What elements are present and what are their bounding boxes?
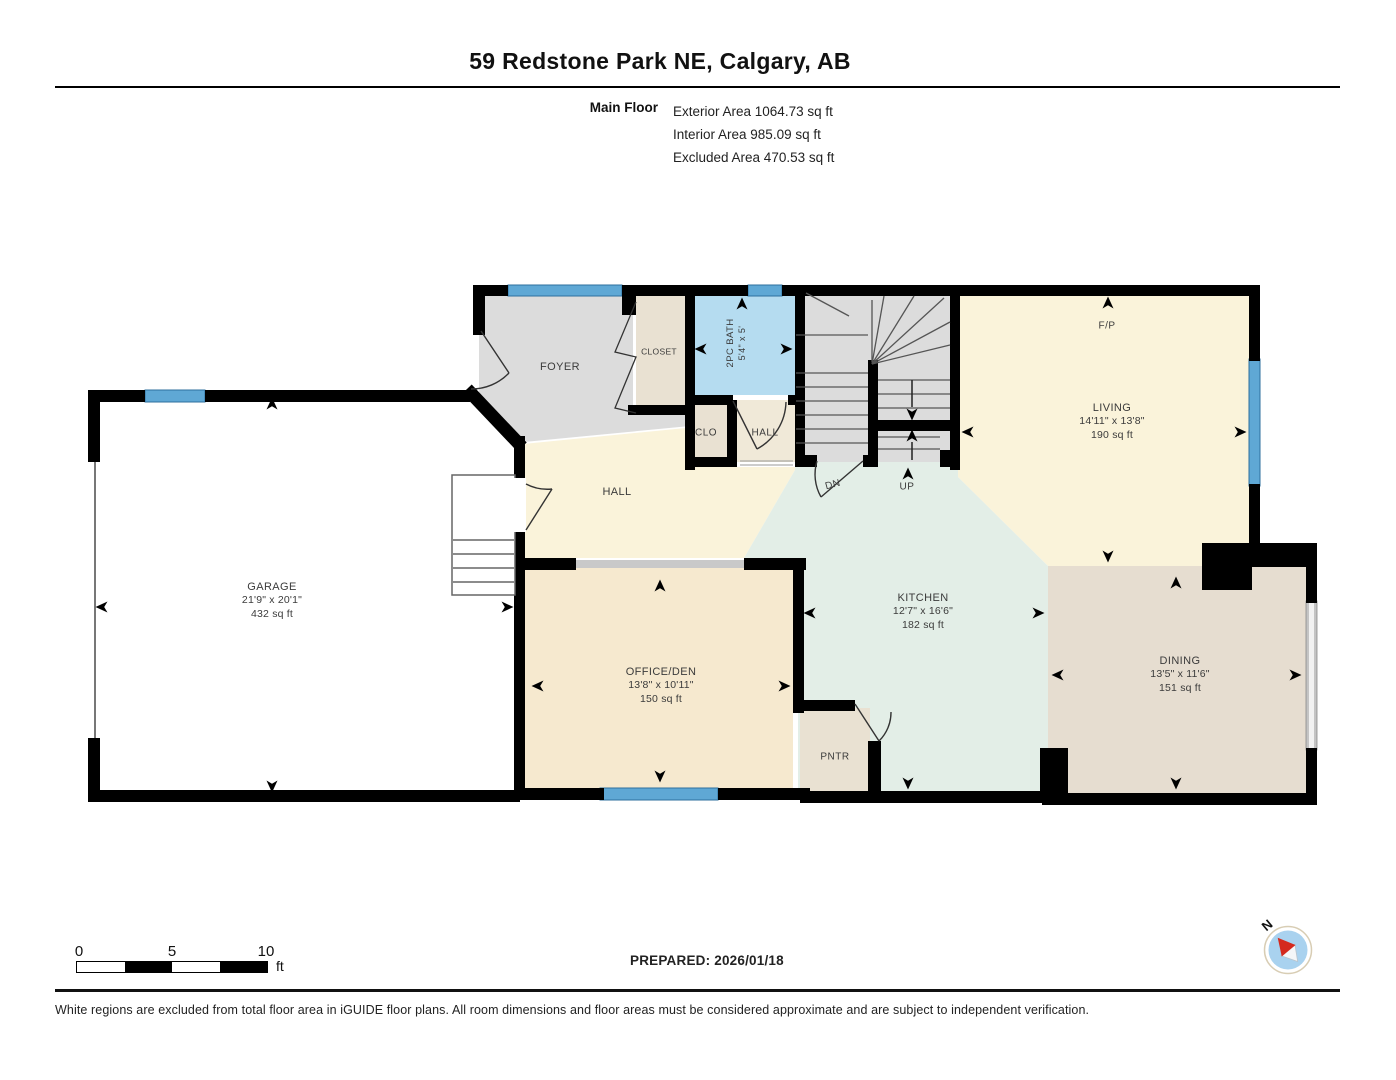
room-fills-layer (93, 296, 1310, 798)
room-label-kitchen: KITCHEN 12'7" x 16'6" 182 sq ft (893, 591, 953, 633)
office-window (600, 788, 718, 800)
prepared-date: PREPARED: 2026/01/18 (630, 953, 784, 968)
scale-tick-5: 5 (168, 943, 176, 960)
room-label-foyer: FOYER (540, 360, 580, 374)
room-label-garage: GARAGE 21'9" x 20'1" 432 sq ft (242, 580, 302, 622)
room-label-clo: CLO (695, 427, 717, 440)
garage-window (145, 390, 205, 402)
room-label-hall-main: HALL (602, 485, 631, 499)
floor-plan-canvas: N (0, 0, 1396, 1080)
dining-patio-door (1306, 601, 1317, 750)
room-label-office-den: OFFICE/DEN 13'8" x 10'11" 150 sq ft (626, 665, 697, 707)
room-label-dining: DINING 13'5" x 11'6" 151 sq ft (1150, 654, 1209, 696)
disclaimer-text: White regions are excluded from total fl… (55, 1003, 1089, 1017)
room-label-pantry: PNTR (820, 751, 849, 764)
room-label-bath: 2PC BATH 5'4" x 5' (725, 319, 749, 368)
scale-unit-label: ft (276, 958, 284, 974)
room-label-living: LIVING 14'11" x 13'8" 190 sq ft (1079, 401, 1144, 443)
bath-window (748, 285, 782, 296)
stairs-up-label: UP (900, 481, 915, 494)
living-window (1249, 359, 1260, 486)
scale-tick-10: 10 (258, 943, 275, 960)
foyer-window (508, 285, 622, 296)
scale-tick-0: 0 (75, 943, 83, 960)
compass: N (1255, 914, 1311, 974)
footer-divider (55, 989, 1340, 992)
garage-landing-steps (452, 475, 515, 595)
office-opening (576, 560, 744, 568)
room-label-hall-upper: HALL (751, 427, 778, 440)
scale-bar-segments (76, 961, 268, 973)
fireplace-label: F/P (1098, 320, 1115, 333)
room-label-closet: CLOSET (641, 346, 677, 357)
